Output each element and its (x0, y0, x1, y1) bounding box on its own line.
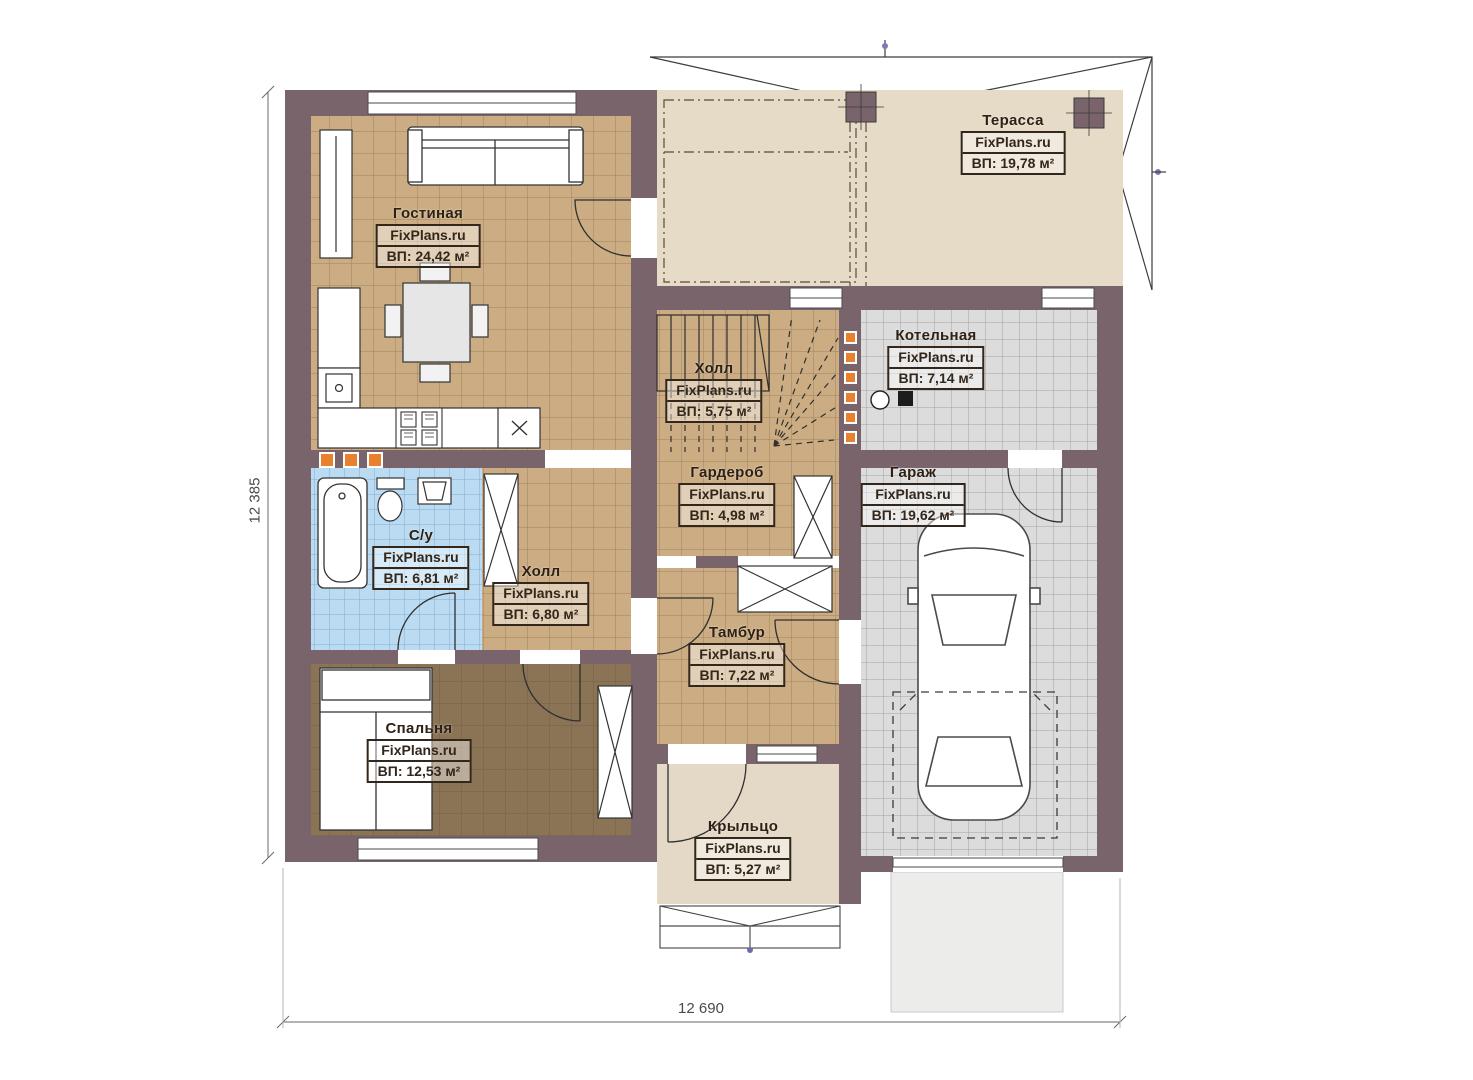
room-name: Холл (665, 360, 762, 377)
floor-plan-canvas: Гостиная FixPlans.ru ВП: 24,42 м² Терасс… (0, 0, 1473, 1080)
dimension-bottom: 12 690 (678, 1000, 724, 1017)
room-label-stairs-hall: Холл FixPlans.ru ВП: 5,75 м² (665, 360, 762, 423)
room-area: ВП: 6,80 м² (494, 603, 587, 624)
room-label-wardrobe: Гардероб FixPlans.ru ВП: 4,98 м² (678, 464, 775, 527)
room-area: ВП: 5,27 м² (696, 858, 789, 879)
room-name: Тамбур (688, 624, 785, 641)
sofa (408, 127, 583, 185)
room-area: ВП: 24,42 м² (378, 245, 479, 266)
room-area: ВП: 5,75 м² (667, 400, 760, 421)
room-area: ВП: 6,81 м² (374, 567, 467, 588)
room-label-garage: Гараж FixPlans.ru ВП: 19,62 м² (861, 464, 966, 527)
room-name: Гараж (861, 464, 966, 481)
room-label-boiler-room: Котельная FixPlans.ru ВП: 7,14 м² (887, 327, 984, 390)
room-name: С/у (372, 527, 469, 544)
room-area: ВП: 12,53 м² (369, 760, 470, 781)
toilet (377, 478, 404, 521)
room-label-terrace: Терасса FixPlans.ru ВП: 19,78 м² (961, 112, 1066, 175)
watermark: FixPlans.ru (963, 133, 1064, 152)
watermark: FixPlans.ru (863, 485, 964, 504)
fridge (498, 408, 540, 448)
room-label-bathroom: С/у FixPlans.ru ВП: 6,81 м² (372, 527, 469, 590)
watermark: FixPlans.ru (680, 485, 773, 504)
room-name: Терасса (961, 112, 1066, 129)
watermark: FixPlans.ru (374, 548, 467, 567)
room-name: Гардероб (678, 464, 775, 481)
room-label-bedroom: Спальня FixPlans.ru ВП: 12,53 м² (367, 720, 472, 783)
floor-plan-drawing (0, 0, 1473, 1080)
watermark: FixPlans.ru (369, 741, 470, 760)
room-name: Гостиная (376, 205, 481, 222)
sink (418, 478, 451, 504)
stove (396, 408, 442, 448)
dimension-left: 12 385 (246, 478, 263, 524)
room-name: Котельная (887, 327, 984, 344)
room-area: ВП: 19,78 м² (963, 152, 1064, 173)
driveway (891, 872, 1063, 1012)
room-label-hall: Холл FixPlans.ru ВП: 6,80 м² (492, 563, 589, 626)
porch-canopy (660, 906, 840, 953)
watermark: FixPlans.ru (696, 839, 789, 858)
car (908, 514, 1040, 820)
room-area: ВП: 4,98 м² (680, 504, 773, 525)
room-area: ВП: 7,22 м² (690, 664, 783, 685)
room-name: Крыльцо (694, 818, 791, 835)
watermark: FixPlans.ru (378, 226, 479, 245)
room-area: ВП: 7,14 м² (889, 367, 982, 388)
room-name: Спальня (367, 720, 472, 737)
garage-door (893, 858, 1063, 867)
room-area: ВП: 19,62 м² (863, 504, 964, 525)
room-label-living-room: Гостиная FixPlans.ru ВП: 24,42 м² (376, 205, 481, 268)
watermark: FixPlans.ru (667, 381, 760, 400)
cabinet (320, 130, 352, 258)
bathtub (318, 478, 367, 588)
room-label-porch: Крыльцо FixPlans.ru ВП: 5,27 м² (694, 818, 791, 881)
watermark: FixPlans.ru (494, 584, 587, 603)
room-name: Холл (492, 563, 589, 580)
watermark: FixPlans.ru (889, 348, 982, 367)
room-label-vestibule: Тамбур FixPlans.ru ВП: 7,22 м² (688, 624, 785, 687)
watermark: FixPlans.ru (690, 645, 783, 664)
